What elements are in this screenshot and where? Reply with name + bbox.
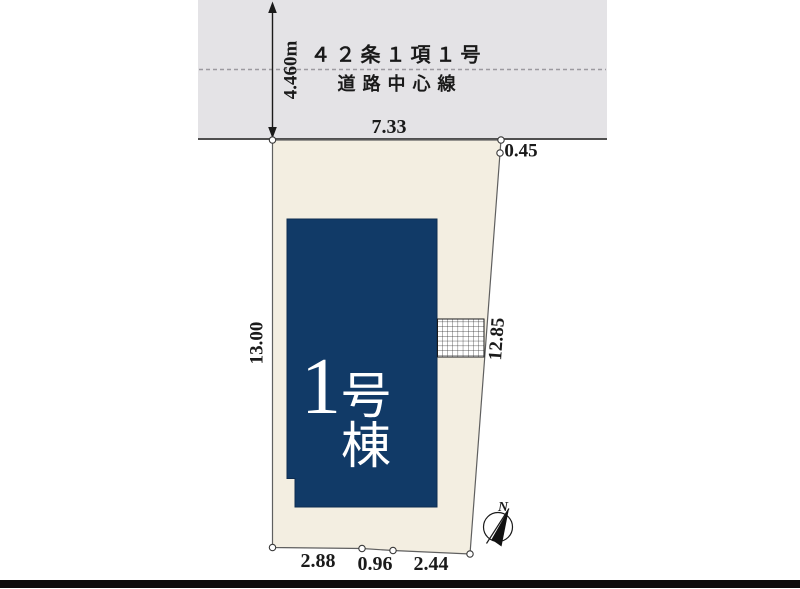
north-label: N (498, 500, 508, 516)
dim-top-right: 0.45 (504, 142, 537, 161)
building-suffix: 号棟 (341, 371, 439, 471)
dim-road-width: 4.460m (282, 41, 301, 100)
boundary-marker (269, 137, 275, 143)
road-regulation-label: ４２条１項１号 (311, 39, 486, 68)
road-centerline-label: 道路中心線 (338, 70, 463, 96)
footer-bar (0, 580, 800, 588)
boundary-marker (498, 137, 504, 143)
dim-bottom-middle: 0.96 (358, 554, 393, 574)
arrow-up-icon (268, 2, 277, 14)
dim-left: 13.00 (248, 322, 267, 365)
boundary-marker (269, 544, 275, 550)
dim-bottom-right: 2.44 (414, 554, 449, 574)
dim-top: 7.33 (372, 117, 407, 137)
building-number: 1 (301, 347, 341, 427)
site-plan-canvas: ４２条１項１号 道路中心線 4.460m 7.33 0.45 13.00 12.… (0, 0, 800, 589)
dim-bottom-left: 2.88 (301, 551, 336, 571)
boundary-marker (359, 545, 365, 551)
porch-hatch (438, 319, 485, 357)
building-label: 1号棟 (289, 347, 439, 471)
boundary-marker (497, 150, 503, 156)
dim-right: 12.85 (486, 317, 508, 361)
boundary-marker (467, 551, 473, 557)
